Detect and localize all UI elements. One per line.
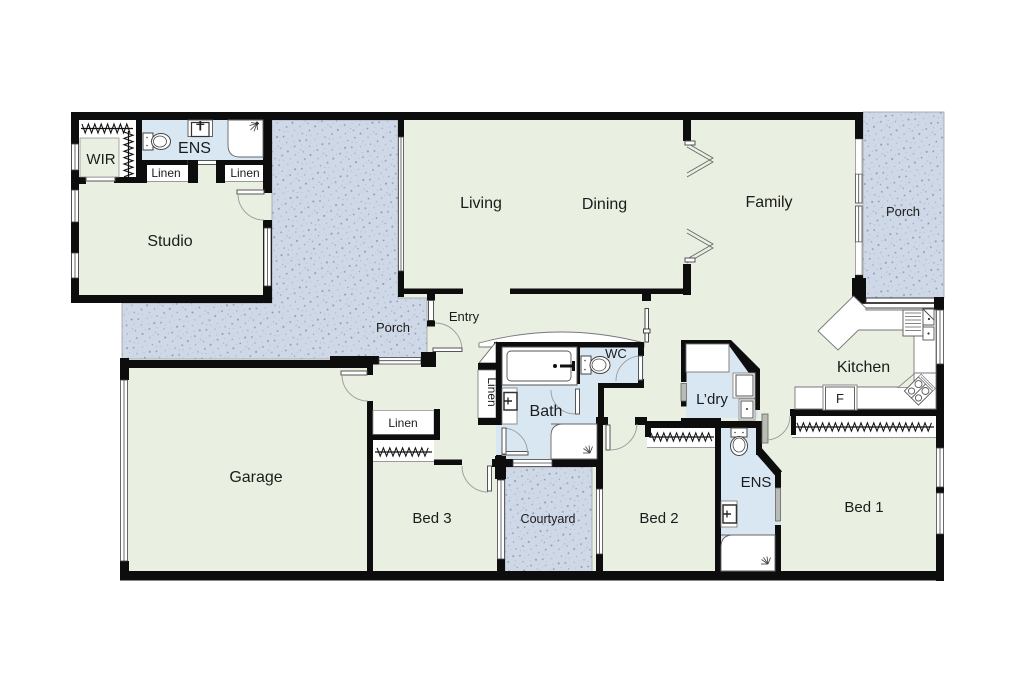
svg-text:L’dry: L’dry bbox=[696, 391, 728, 408]
svg-text:Bed 1: Bed 1 bbox=[844, 499, 883, 516]
svg-text:Linen: Linen bbox=[388, 416, 417, 430]
svg-text:Studio: Studio bbox=[147, 233, 192, 250]
svg-text:Family: Family bbox=[745, 194, 792, 211]
svg-text:Bed 3: Bed 3 bbox=[412, 510, 451, 527]
svg-text:Bed 2: Bed 2 bbox=[639, 510, 678, 527]
svg-text:Linen: Linen bbox=[230, 166, 259, 180]
svg-text:Living: Living bbox=[460, 195, 502, 212]
svg-text:WIR: WIR bbox=[86, 151, 115, 168]
svg-text:Dining: Dining bbox=[582, 196, 627, 213]
svg-text:F: F bbox=[836, 391, 844, 406]
svg-text:Garage: Garage bbox=[229, 469, 282, 486]
svg-text:ENS: ENS bbox=[178, 140, 211, 157]
svg-text:Porch: Porch bbox=[376, 320, 410, 335]
svg-text:Linen: Linen bbox=[151, 166, 180, 180]
svg-text:Kitchen: Kitchen bbox=[837, 359, 890, 376]
svg-text:Bath: Bath bbox=[530, 403, 563, 420]
svg-text:Entry: Entry bbox=[449, 309, 480, 324]
svg-text:Courtyard: Courtyard bbox=[521, 512, 576, 526]
svg-text:Porch: Porch bbox=[886, 204, 920, 219]
svg-text:ENS: ENS bbox=[741, 474, 772, 491]
svg-text:WC: WC bbox=[605, 346, 627, 361]
svg-text:Linen: Linen bbox=[485, 377, 499, 406]
